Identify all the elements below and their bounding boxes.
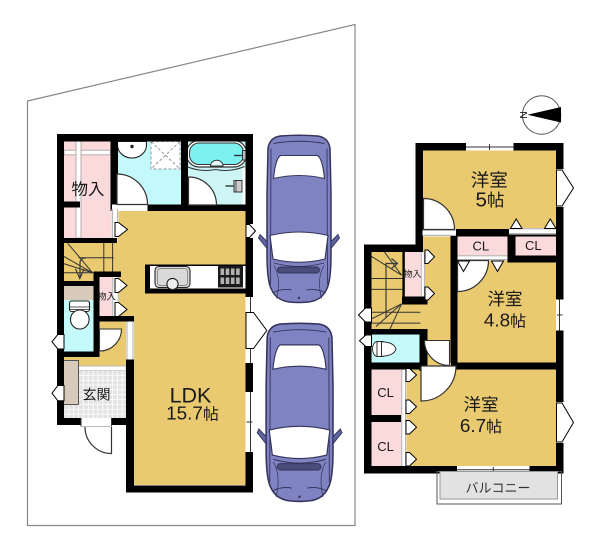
svg-text:15.7: 15.7 — [166, 403, 203, 424]
svg-text:CL: CL — [472, 239, 489, 254]
svg-text:N: N — [519, 111, 530, 118]
svg-text:5: 5 — [476, 188, 487, 211]
svg-text:CL: CL — [377, 439, 394, 454]
svg-text:CL: CL — [525, 238, 542, 253]
svg-text:4.8: 4.8 — [484, 310, 510, 331]
svg-text:6.7: 6.7 — [460, 416, 486, 437]
svg-text:CL: CL — [377, 385, 394, 400]
